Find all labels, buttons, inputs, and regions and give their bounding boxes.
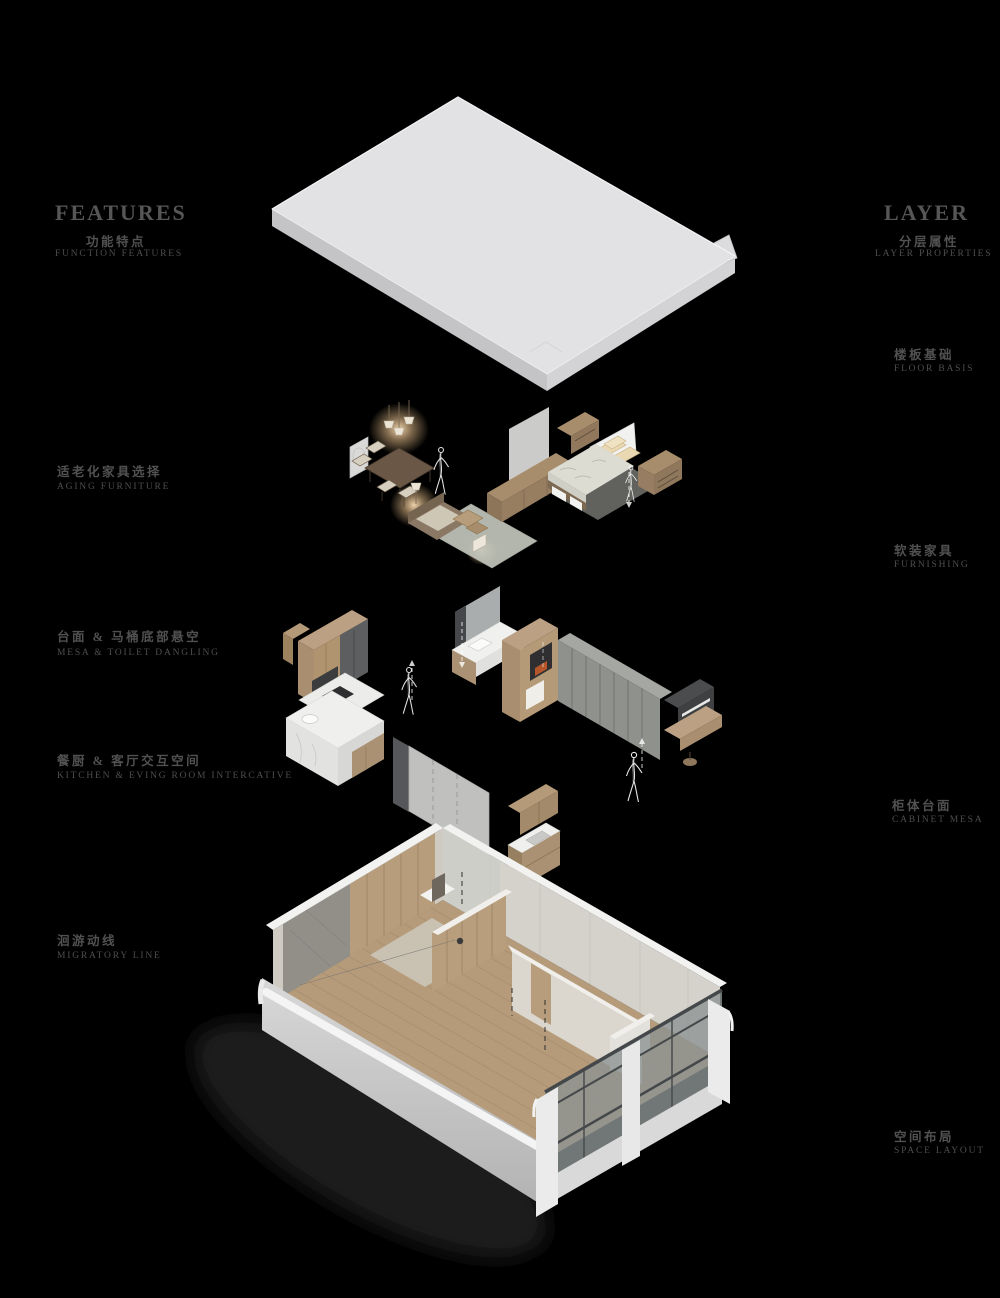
- layer-label-en: CABINET MESA: [892, 815, 983, 825]
- layer-label-en: FLOOR BASIS: [894, 364, 974, 374]
- feature-label-zh: 台面 & 马桶底部悬空: [57, 626, 201, 645]
- furnishing-layer: [350, 400, 682, 568]
- wardrobe-run: [502, 618, 722, 766]
- layer-label-zh: 楼板基础: [894, 344, 954, 363]
- feature-label-en: MIGRATORY LINE: [57, 951, 162, 961]
- kitchen-cabinets: [283, 610, 384, 786]
- bed-group: [487, 407, 682, 522]
- feature-label-en: MESA & TOILET DANGLING: [57, 648, 220, 658]
- features-subtitle-en: FUNCTION FEATURES: [55, 249, 183, 259]
- feature-label-zh: 洄游动线: [57, 930, 117, 949]
- poster-canvas: FEATURES 功能特点 FUNCTION FEATURES 适老化家具选择 …: [0, 0, 1000, 1298]
- feature-label-en: KITCHEN & EVING ROOM INTERCATIVE: [57, 771, 293, 781]
- human-figure-sketch: [627, 752, 643, 802]
- human-figure-sketch: [434, 448, 449, 495]
- connector-arrow: [639, 738, 645, 768]
- features-title: FEATURES: [55, 200, 187, 226]
- feature-label-zh: 适老化家具选择: [57, 461, 162, 480]
- layer-subtitle-zh: 分层属性: [899, 231, 959, 250]
- features-subtitle-zh: 功能特点: [86, 231, 146, 250]
- feature-label-zh: 餐厨 & 客厅交互空间: [57, 750, 201, 769]
- space-layout-layer: [161, 823, 910, 1298]
- cabinet-mesa-layer: [283, 586, 722, 887]
- layer-label-en: FURNISHING: [894, 560, 970, 570]
- layer-label-zh: 柜体台面: [892, 795, 952, 814]
- layer-title: LAYER: [884, 200, 969, 226]
- layer-label-zh: 软装家具: [894, 540, 954, 559]
- layer-subtitle-en: LAYER PROPERTIES: [875, 249, 992, 259]
- layer-label-en: SPACE LAYOUT: [894, 1146, 985, 1156]
- layer-label-zh: 空间布局: [894, 1126, 954, 1145]
- human-figure-sketch: [402, 668, 417, 715]
- floor-slab-layer: [272, 97, 737, 391]
- feature-label-en: AGING FURNITURE: [57, 482, 170, 492]
